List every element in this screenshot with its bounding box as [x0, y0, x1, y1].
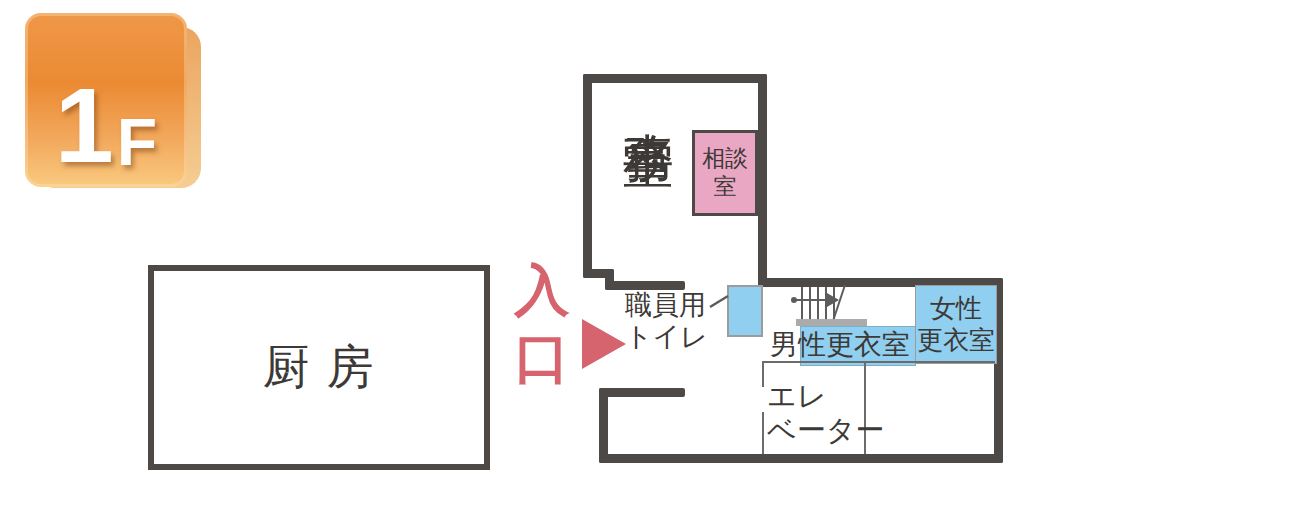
floor-badge-suffix: F: [117, 115, 157, 169]
wall-segment: [599, 388, 608, 463]
room-kitchen: 厨 房: [148, 265, 490, 470]
elevator-label-line1: エレ: [767, 379, 884, 413]
womens-locker-label-line2: 更衣室: [917, 325, 995, 356]
wall-segment: [758, 74, 767, 287]
wall-segment: [599, 388, 685, 397]
staff-toilet-label-line1: 職員用: [625, 290, 708, 322]
room-consultation: 相談 室: [692, 130, 758, 216]
floor-plan: 1 F 厨 房 事務室 相談 室 入 口 職員用 トイレ 男性更衣室 女性 更衣…: [0, 0, 1292, 528]
floor-badge: 1 F: [25, 13, 187, 187]
entrance-arrow-icon: [582, 319, 626, 369]
elevator-label-line2: ベーター: [767, 413, 884, 447]
womens-locker-label-line1: 女性: [930, 293, 982, 324]
entrance-char-2: 口: [515, 331, 570, 386]
elevator-wall: [762, 412, 764, 454]
wall-segment: [583, 74, 592, 278]
wall-segment: [599, 454, 1003, 463]
wall-segment: [605, 281, 685, 290]
elevator-label: エレ ベーター: [767, 379, 884, 447]
office-label: 事務室: [613, 92, 682, 267]
wall-segment: [583, 74, 767, 83]
consultation-label-line1: 相談: [702, 145, 748, 173]
staff-toilet-label: 職員用 トイレ: [625, 290, 708, 354]
room-staff-toilet: [727, 285, 763, 337]
mens-locker-label: 男性更衣室: [770, 331, 910, 359]
room-womens-locker: 女性 更衣室: [915, 285, 997, 364]
kitchen-label: 厨 房: [262, 336, 375, 399]
consultation-label-line2: 室: [714, 173, 737, 201]
elevator-wall: [762, 361, 995, 363]
elevator-wall: [762, 361, 764, 387]
stairs-icon: [791, 285, 867, 326]
floor-badge-number: 1: [55, 82, 114, 169]
entrance-label: 入 口: [509, 263, 575, 386]
entrance-char-1: 入: [515, 263, 570, 318]
staff-toilet-leader-line: [710, 296, 728, 307]
staff-toilet-label-line2: トイレ: [625, 322, 708, 354]
